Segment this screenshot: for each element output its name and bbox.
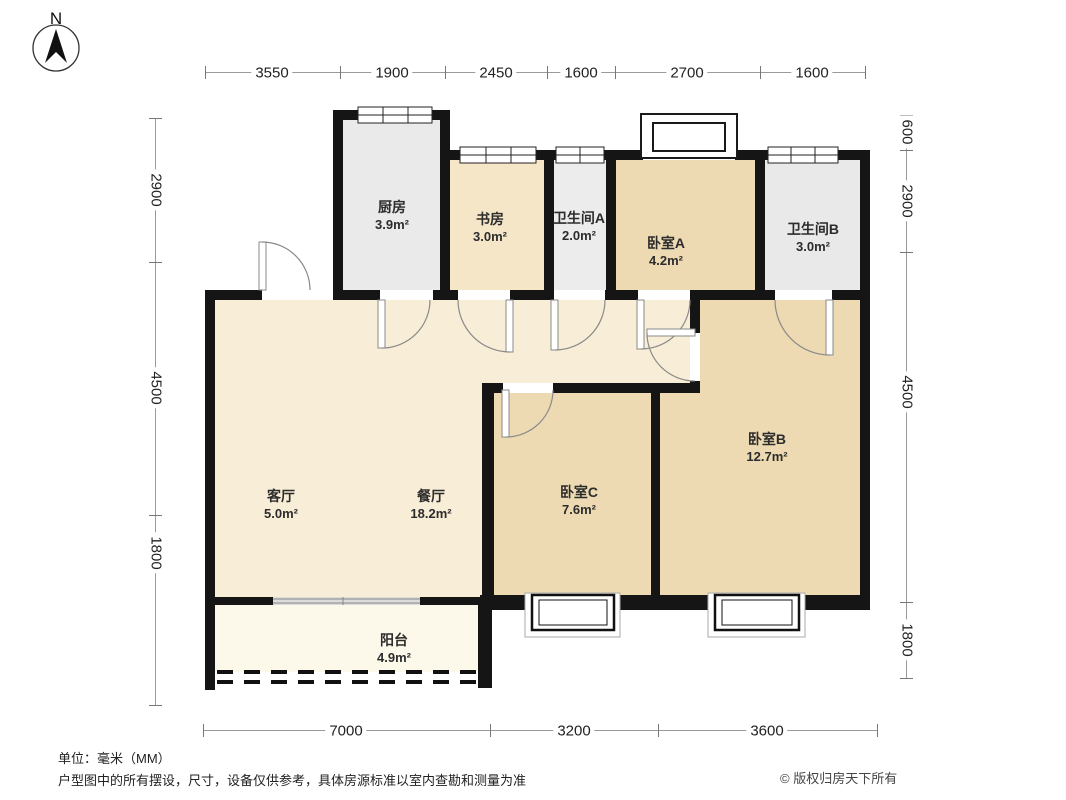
- disclaimer: 户型图中的所有摆设，尺寸，设备仅供参考，具体房源标准以室内查勘和测量为准: [58, 770, 526, 789]
- dim-top-2: 1900: [371, 66, 412, 81]
- room-label-living-room: 客厅 5.0m²: [264, 488, 298, 522]
- bathroom-b-window: [768, 147, 838, 163]
- north-arrow-icon: [45, 29, 67, 63]
- dim-right-1: 600: [900, 115, 915, 148]
- dim-left-1: 2900: [149, 169, 164, 210]
- floor-plan-page: N: [0, 0, 1066, 800]
- dim-left-2: 4500: [149, 367, 164, 408]
- dim-top-4: 1600: [560, 66, 601, 81]
- dim-bottom-3: 3600: [746, 724, 787, 739]
- floor-living-hall: [215, 300, 690, 383]
- bedroom-b-window: [708, 593, 805, 637]
- room-label-balcony: 阳台 4.9m²: [377, 632, 411, 666]
- dim-top-6: 1600: [791, 66, 832, 81]
- dim-right-4: 1800: [900, 619, 915, 660]
- dim-top-1: 3550: [251, 66, 292, 81]
- compass: N: [33, 9, 79, 71]
- floor-bedroom-b-upper: [700, 300, 860, 395]
- floor-balcony: [215, 597, 478, 672]
- bedroom-a-bay-window: [641, 114, 737, 158]
- dim-right-2: 2900: [900, 180, 915, 221]
- room-label-bedroom-c: 卧室C 7.6m²: [560, 484, 598, 518]
- floor-bedroom-b: [660, 393, 860, 595]
- dim-left-3: 1800: [149, 532, 164, 573]
- room-label-kitchen: 厨房 3.9m²: [375, 199, 409, 233]
- study-window: [460, 147, 536, 163]
- dim-right-3: 4500: [900, 371, 915, 412]
- compass-north-label: N: [50, 9, 62, 28]
- room-label-dining-room: 餐厅 18.2m²: [410, 488, 451, 522]
- balcony-dashed-edge: [217, 672, 478, 682]
- unit-note: 单位：毫米（MM）: [58, 748, 171, 767]
- room-label-bedroom-a: 卧室A 4.2m²: [647, 235, 685, 269]
- copyright: © 版权归房天下所有: [780, 768, 897, 787]
- room-label-study: 书房 3.0m²: [473, 211, 507, 245]
- balcony-sliding-door: [273, 597, 420, 605]
- dim-bottom-1: 7000: [325, 724, 366, 739]
- dim-top-3: 2450: [475, 66, 516, 81]
- room-label-bathroom-b: 卫生间B 3.0m²: [787, 221, 839, 255]
- floor-bedroom-a: [616, 160, 755, 290]
- dim-top-5: 2700: [666, 66, 707, 81]
- entry-door: [259, 242, 310, 290]
- kitchen-window: [358, 107, 432, 123]
- room-label-bathroom-a: 卫生间A 2.0m²: [553, 210, 605, 244]
- dim-bottom-2: 3200: [553, 724, 594, 739]
- room-label-bedroom-b: 卧室B 12.7m²: [746, 431, 787, 465]
- bathroom-a-window: [556, 147, 604, 163]
- bedroom-c-window: [525, 593, 620, 637]
